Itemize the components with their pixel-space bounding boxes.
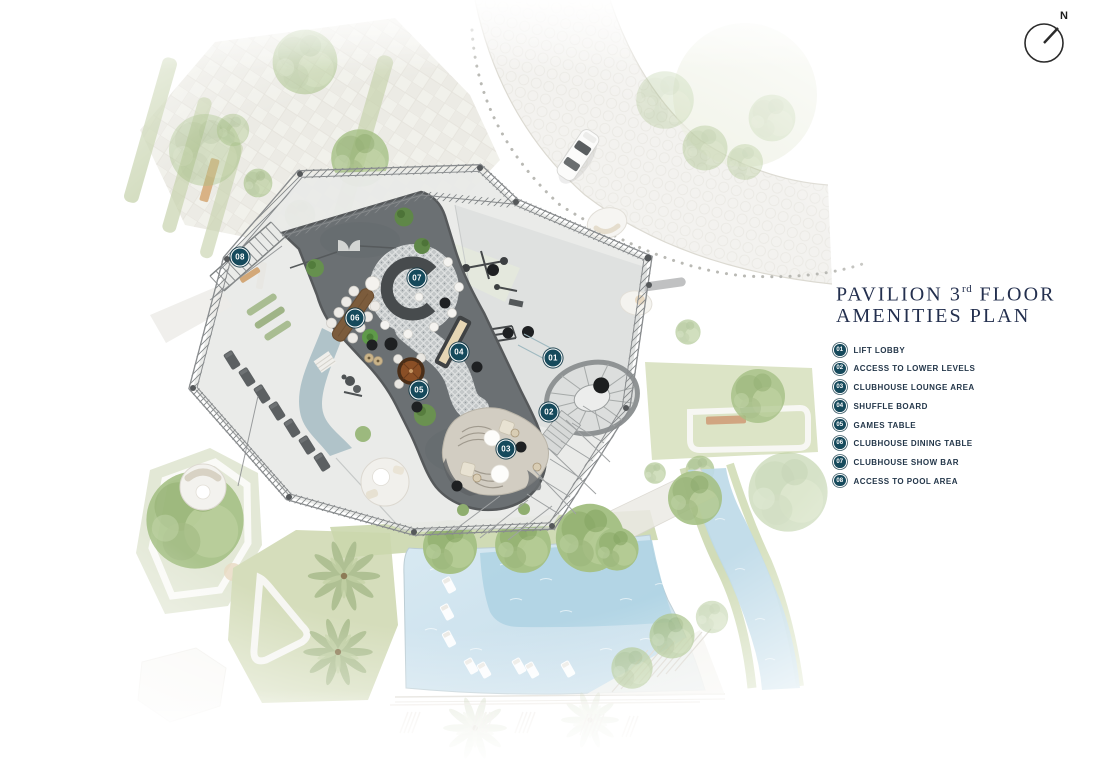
legend-item-shuffle-board: 04 SHUFFLE BOARD — [833, 399, 975, 413]
legend-badge: 03 — [833, 380, 847, 394]
legend-label: ACCESS TO POOL AREA — [854, 476, 958, 486]
legend-badge: 07 — [833, 455, 847, 469]
plan-marker-06: 06 — [346, 309, 365, 328]
legend-badge: 08 — [833, 474, 847, 488]
legend-label: LIFT LOBBY — [854, 345, 906, 355]
plan-marker-07: 07 — [408, 269, 427, 288]
plan-marker-08: 08 — [231, 248, 250, 267]
legend-badge: 05 — [833, 418, 847, 432]
compass-icon: N — [1016, 8, 1086, 68]
plan-marker-01: 01 — [544, 349, 563, 368]
legend-label: CLUBHOUSE LOUNGE AREA — [854, 382, 975, 392]
legend-item-games-table: 05 GAMES TABLE — [833, 418, 975, 432]
legend-item-lift-lobby: 01 LIFT LOBBY — [833, 343, 975, 357]
legend-label: CLUBHOUSE DINING TABLE — [854, 438, 973, 448]
bottom-fade — [0, 690, 1098, 769]
compass-graphic — [1016, 8, 1086, 68]
legend-item-clubhouse-lounge: 03 CLUBHOUSE LOUNGE AREA — [833, 380, 975, 394]
legend-label: GAMES TABLE — [854, 420, 917, 430]
legend-badge: 01 — [833, 343, 847, 357]
page-title: PAVILION 3rd FLOOR AMENITIES PLAN — [836, 280, 1056, 328]
legend-badge: 02 — [833, 362, 847, 376]
legend: 01 LIFT LOBBY 02 ACCESS TO LOWER LEVELS … — [833, 343, 975, 493]
north-needle — [1044, 28, 1058, 43]
legend-item-access-pool-area: 08 ACCESS TO POOL AREA — [833, 474, 975, 488]
legend-item-clubhouse-show-bar: 07 CLUBHOUSE SHOW BAR — [833, 455, 975, 469]
top-fade — [0, 0, 1098, 70]
title-line-1: PAVILION 3rd FLOOR — [836, 280, 1056, 306]
plan-marker-03: 03 — [497, 440, 516, 459]
legend-label: CLUBHOUSE SHOW BAR — [854, 457, 959, 467]
legend-badge: 06 — [833, 436, 847, 450]
title-line-2: AMENITIES PLAN — [836, 306, 1056, 328]
legend-item-access-lower-levels: 02 ACCESS TO LOWER LEVELS — [833, 362, 975, 376]
amenities-plan-page: 01 02 03 04 05 06 07 08 PAVILION 3rd FLO… — [0, 0, 1098, 769]
plan-marker-05: 05 — [410, 381, 429, 400]
plan-marker-04: 04 — [450, 343, 469, 362]
legend-badge: 04 — [833, 399, 847, 413]
legend-label: ACCESS TO LOWER LEVELS — [854, 363, 976, 373]
plan-marker-02: 02 — [540, 403, 559, 422]
legend-label: SHUFFLE BOARD — [854, 401, 928, 411]
north-label: N — [1060, 10, 1068, 22]
legend-item-clubhouse-dining: 06 CLUBHOUSE DINING TABLE — [833, 436, 975, 450]
